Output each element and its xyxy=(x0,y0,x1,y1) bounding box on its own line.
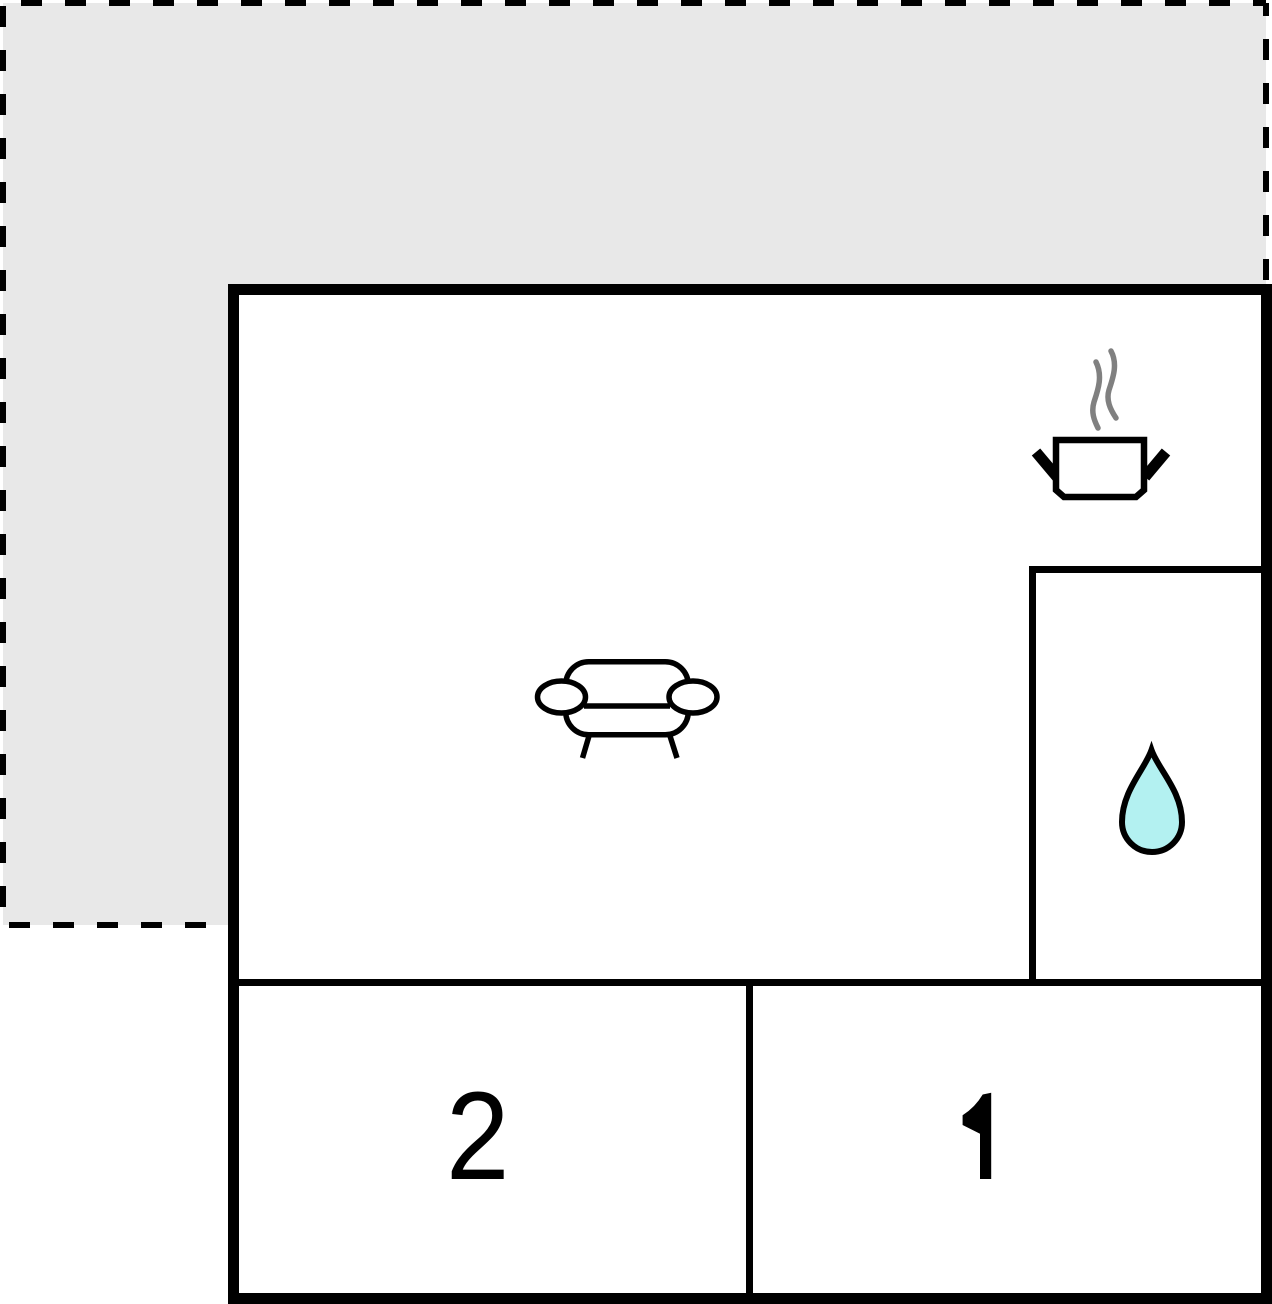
svg-text:2: 2 xyxy=(446,1067,509,1206)
